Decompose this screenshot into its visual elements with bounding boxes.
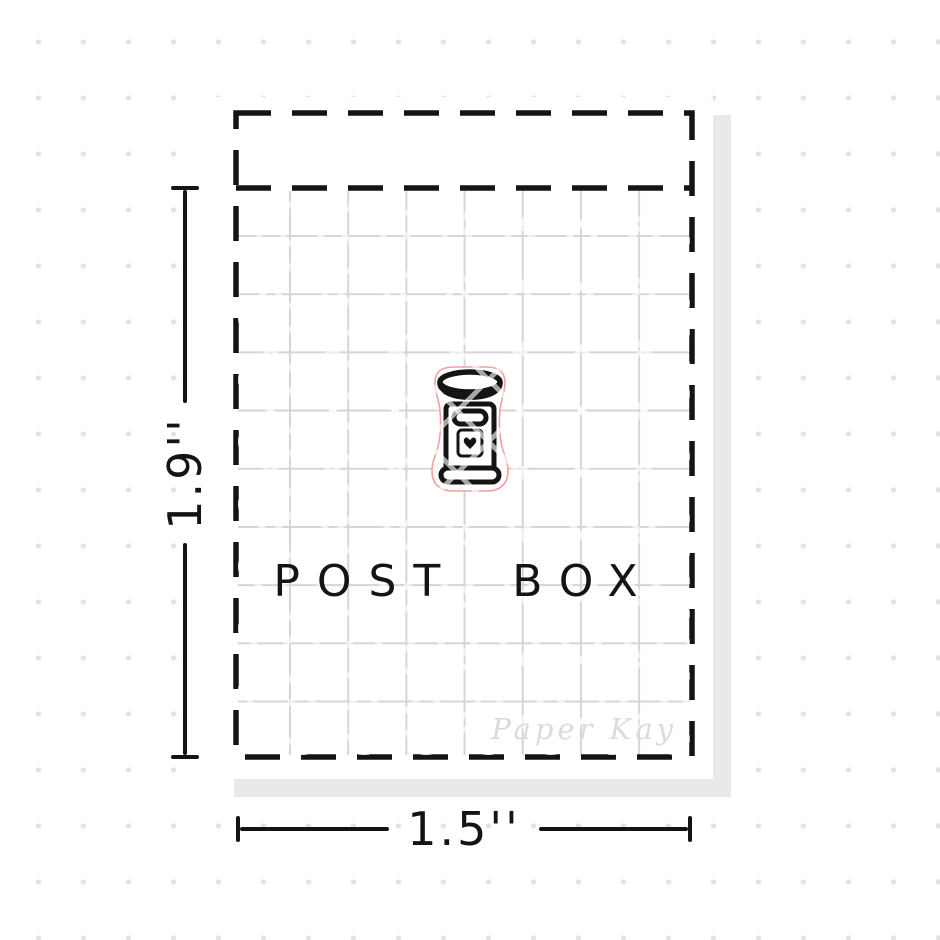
height-dimension-bottom-cap [171,755,199,759]
dot-grid-background: POST BOX Paper Kay 1.9'' 1.5'' [0,0,940,940]
brand-watermark: Paper Kay [236,712,677,746]
width-dimension-line-right [539,827,688,831]
width-dimension-label: 1.5'' [389,802,539,856]
width-dimension-line-left [240,827,389,831]
width-dimension: 1.5'' [236,815,692,843]
postbox-base [441,468,499,482]
height-dimension-line-upper [183,190,187,403]
width-dimension-right-cap [688,816,692,842]
height-dimension-label-box: 1.9'' [171,403,199,543]
post-box-sticker [424,364,516,496]
height-dimension-line-lower [183,543,187,756]
product-title: POST BOX [236,556,692,607]
height-dimension: 1.9'' [171,186,199,759]
height-dimension-label: 1.9'' [158,416,212,529]
post-box-icon [424,364,516,496]
